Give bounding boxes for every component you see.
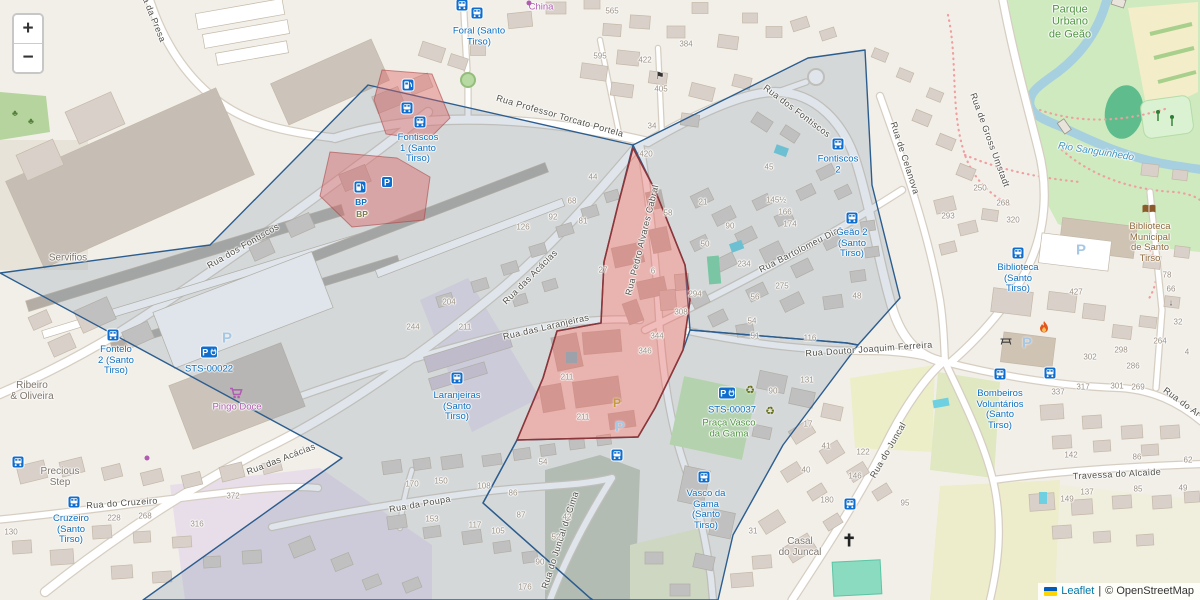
- overlay-layers: [0, 0, 1200, 600]
- attribution-separator: |: [1098, 585, 1101, 597]
- attribution-bar: Leaflet | © OpenStreetMap: [1038, 583, 1200, 600]
- zoom-control: + −: [12, 13, 44, 74]
- map-viewport[interactable]: ♣ ♣ Rua da PresaRua Professor Torcato Po…: [0, 0, 1200, 600]
- osm-copyright: © OpenStreetMap: [1105, 585, 1194, 597]
- zoom-in-button[interactable]: +: [14, 15, 42, 44]
- ukraine-flag-icon: [1044, 587, 1057, 596]
- zoom-out-button[interactable]: −: [14, 44, 42, 72]
- leaflet-link[interactable]: Leaflet: [1061, 585, 1094, 597]
- highlight-area[interactable]: [374, 70, 450, 140]
